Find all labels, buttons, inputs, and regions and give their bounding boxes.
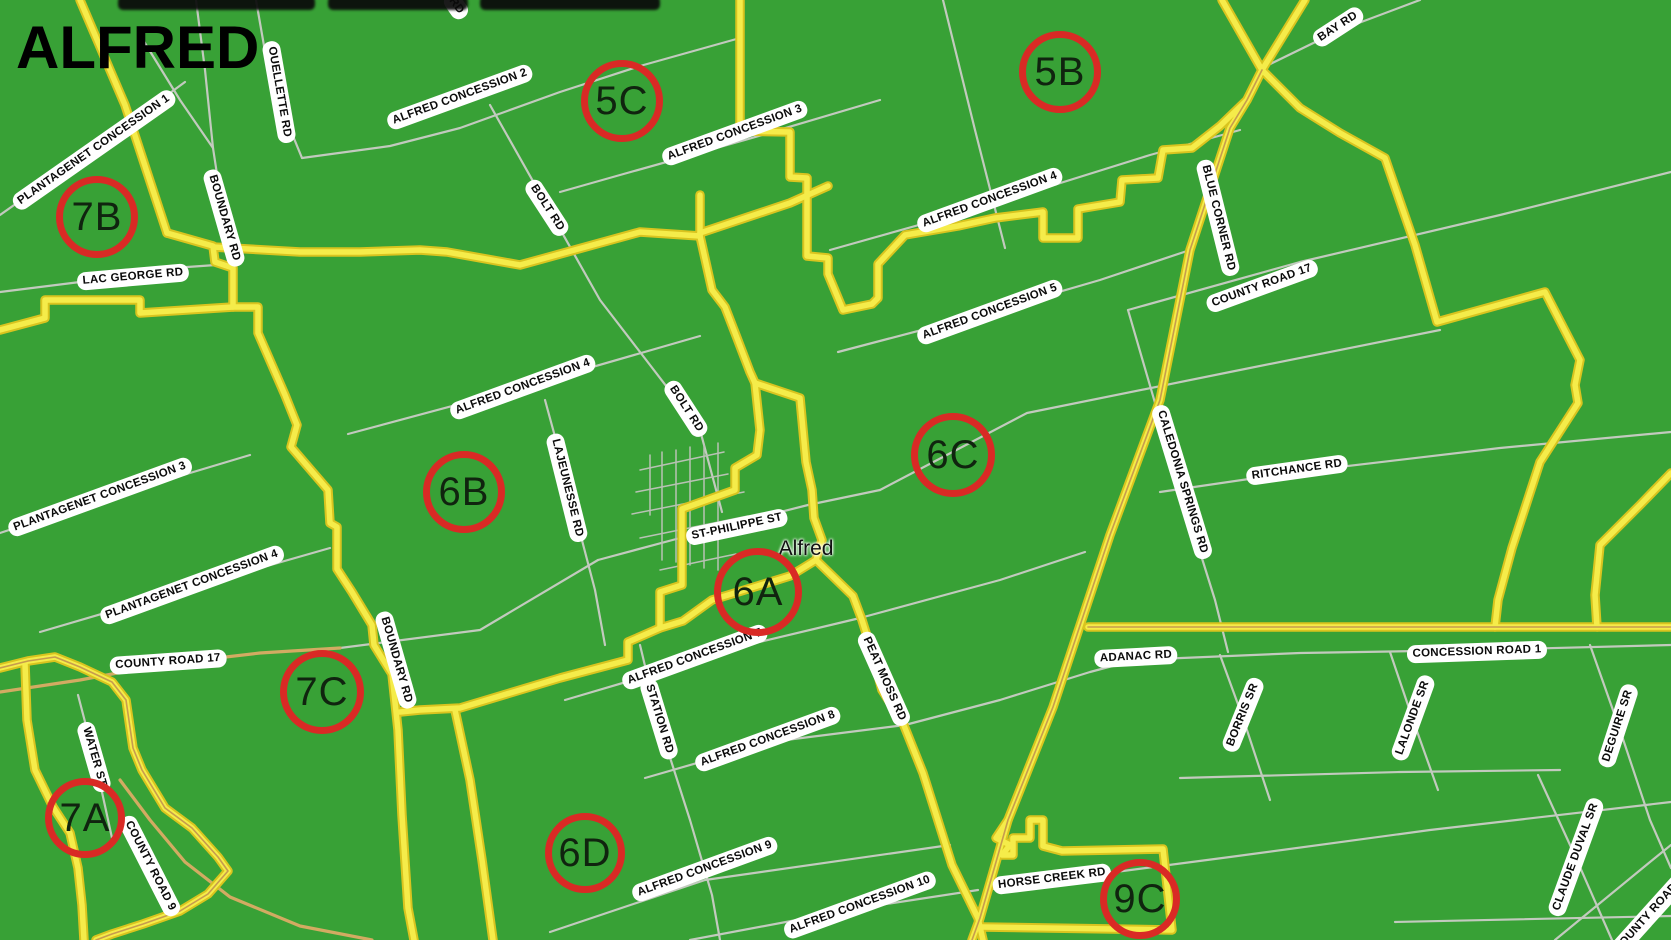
zone-boundary: [213, 232, 700, 265]
zone-marker-7a[interactable]: 7A: [45, 778, 125, 858]
road-line: [302, 38, 740, 158]
map-roads-layer: [0, 0, 1671, 940]
top-cropped-bar: [118, 0, 315, 10]
top-cropped-bar: [328, 0, 468, 10]
zone-boundary-edge: [1222, 0, 1305, 70]
top-cropped-bar: [480, 0, 660, 10]
zone-marker-label: 6C: [926, 433, 979, 478]
zone-marker-6a[interactable]: 6A: [714, 548, 802, 636]
road-line: [1180, 770, 1560, 778]
zone-marker-7c[interactable]: 7C: [280, 650, 364, 734]
zone-marker-7b[interactable]: 7B: [56, 176, 138, 258]
zone-boundary: [1262, 70, 1580, 627]
zone-marker-5c[interactable]: 5C: [581, 60, 663, 142]
zone-marker-label: 6B: [439, 470, 490, 515]
zone-boundary-edge: [0, 300, 233, 330]
zone-marker-label: 5B: [1035, 50, 1086, 95]
zone-marker-9c[interactable]: 9C: [1100, 859, 1180, 939]
zone-marker-6d[interactable]: 6D: [545, 813, 625, 893]
zone-marker-6b[interactable]: 6B: [423, 451, 505, 533]
town-name-label: Alfred: [779, 537, 834, 561]
zone-marker-6c[interactable]: 6C: [911, 413, 995, 497]
zone-marker-label: 7A: [60, 796, 111, 841]
zone-boundary-edge: [1595, 473, 1671, 627]
zone-boundary: [1595, 473, 1671, 627]
zone-marker-label: 5C: [595, 79, 648, 124]
zone-marker-label: 7C: [295, 670, 348, 715]
zone-boundary-edge: [1262, 70, 1580, 627]
map-canvas[interactable]: ALFRED Alfred PLANTAGENET CONCESSION 1OU…: [0, 0, 1671, 940]
zone-marker-label: 6A: [733, 570, 784, 615]
zone-marker-label: 9C: [1113, 877, 1166, 922]
road-line: [490, 105, 722, 512]
map-title: ALFRED: [16, 18, 259, 78]
zone-marker-5b[interactable]: 5B: [1019, 31, 1101, 113]
town-street-line: [640, 452, 724, 470]
zone-marker-label: 6D: [558, 831, 611, 876]
road-line: [1395, 916, 1671, 922]
zone-boundary-edge: [400, 628, 660, 712]
zone-marker-label: 7B: [72, 195, 123, 240]
road-line: [645, 645, 1671, 778]
road-line: [1160, 432, 1671, 492]
zone-boundary: [455, 710, 493, 940]
zone-boundary: [400, 628, 660, 712]
